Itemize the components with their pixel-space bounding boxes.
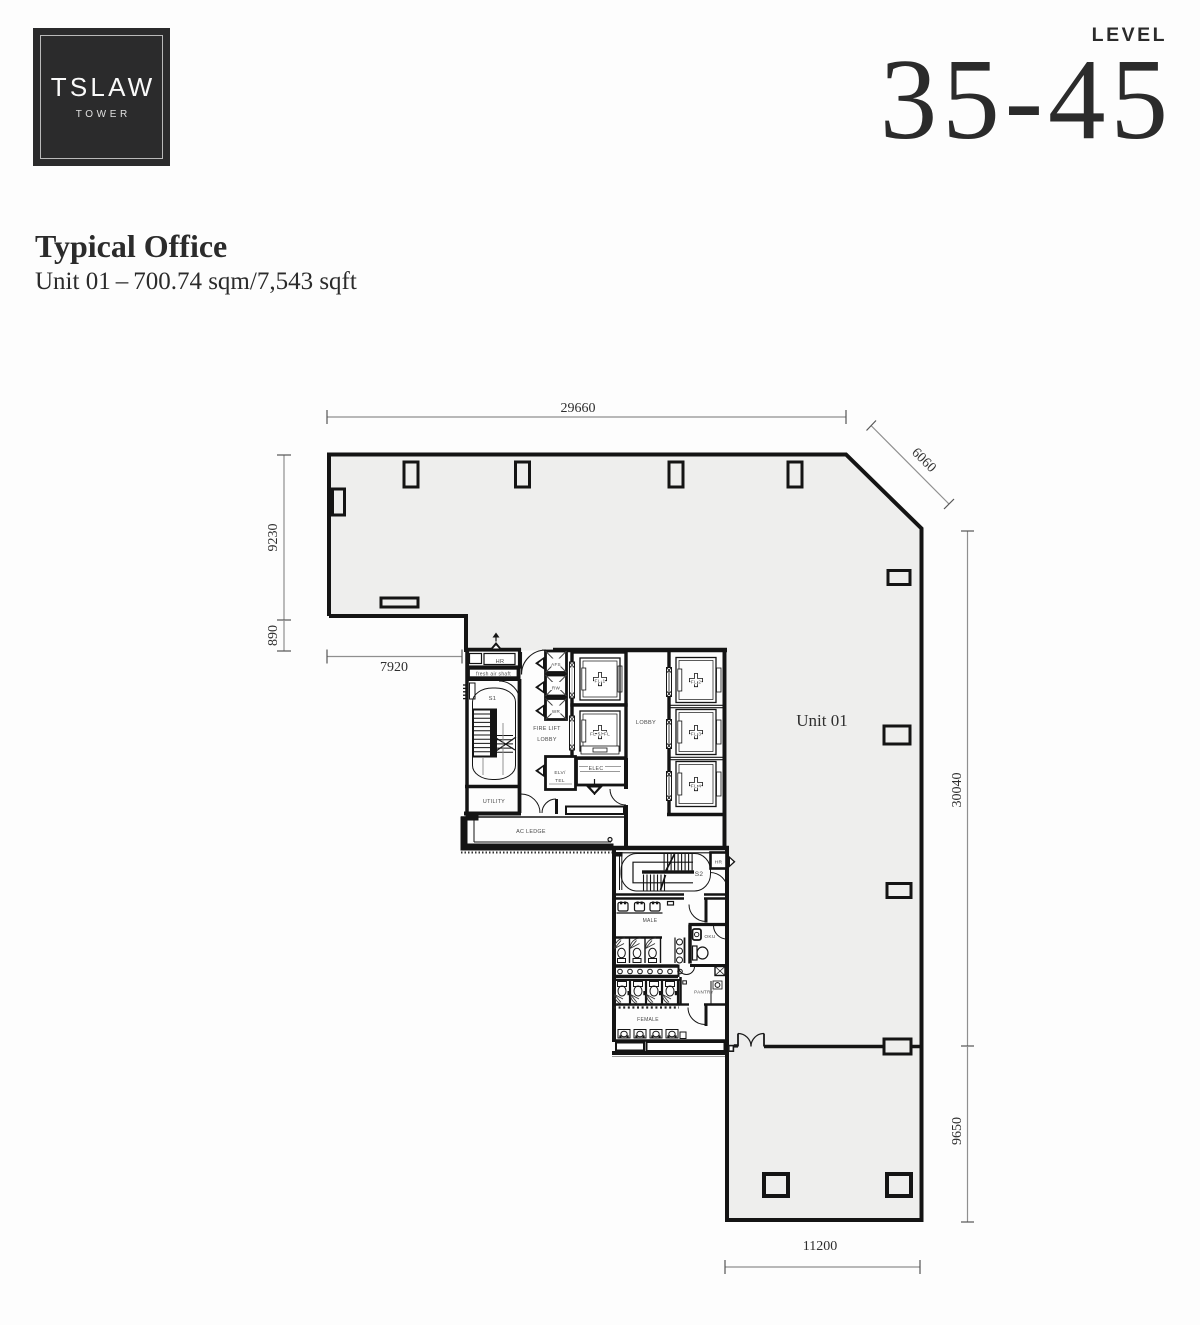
svg-text:FL 4: FL 4: [691, 784, 702, 790]
svg-text:PANTRY: PANTRY: [694, 990, 714, 995]
svg-text:FL 5/ FL: FL 5/ FL: [590, 732, 610, 738]
svg-text:RW: RW: [552, 686, 561, 691]
svg-text:FL-1: FL-1: [594, 679, 605, 685]
svg-text:UTILITY: UTILITY: [483, 799, 505, 805]
svg-text:7920: 7920: [380, 660, 408, 675]
svg-text:FIRE LIFT: FIRE LIFT: [533, 726, 561, 732]
svg-text:890: 890: [266, 625, 281, 646]
svg-text:FEMALE: FEMALE: [637, 1017, 659, 1023]
svg-text:LOBBY: LOBBY: [636, 720, 656, 726]
svg-text:S2: S2: [695, 871, 704, 878]
svg-text:6060: 6060: [908, 445, 938, 475]
svg-text:9230: 9230: [266, 524, 281, 552]
svg-text:FL 3: FL 3: [691, 732, 702, 738]
svg-text:30040: 30040: [950, 773, 965, 808]
svg-text:fresh air shaft: fresh air shaft: [476, 671, 511, 677]
svg-text:FL 2: FL 2: [691, 680, 702, 686]
svg-text:ELEC: ELEC: [589, 766, 604, 772]
svg-text:LOBBY: LOBBY: [537, 737, 557, 743]
svg-text:HR: HR: [496, 659, 505, 665]
svg-text:AC LEDGE: AC LEDGE: [516, 829, 546, 835]
svg-text:29660: 29660: [561, 401, 596, 416]
svg-text:OKU: OKU: [704, 934, 716, 940]
svg-text:AFS: AFS: [551, 662, 561, 667]
svg-text:TEL: TEL: [555, 778, 565, 784]
svg-text:S1: S1: [489, 696, 497, 702]
svg-text:HR: HR: [715, 860, 723, 866]
svg-text:MALE: MALE: [643, 918, 658, 924]
svg-text:Unit 01: Unit 01: [796, 711, 847, 730]
svg-text:ELV/: ELV/: [554, 770, 566, 776]
svg-text:9650: 9650: [950, 1117, 965, 1145]
svg-text:11200: 11200: [803, 1239, 837, 1254]
svg-text:WR: WR: [552, 709, 561, 714]
